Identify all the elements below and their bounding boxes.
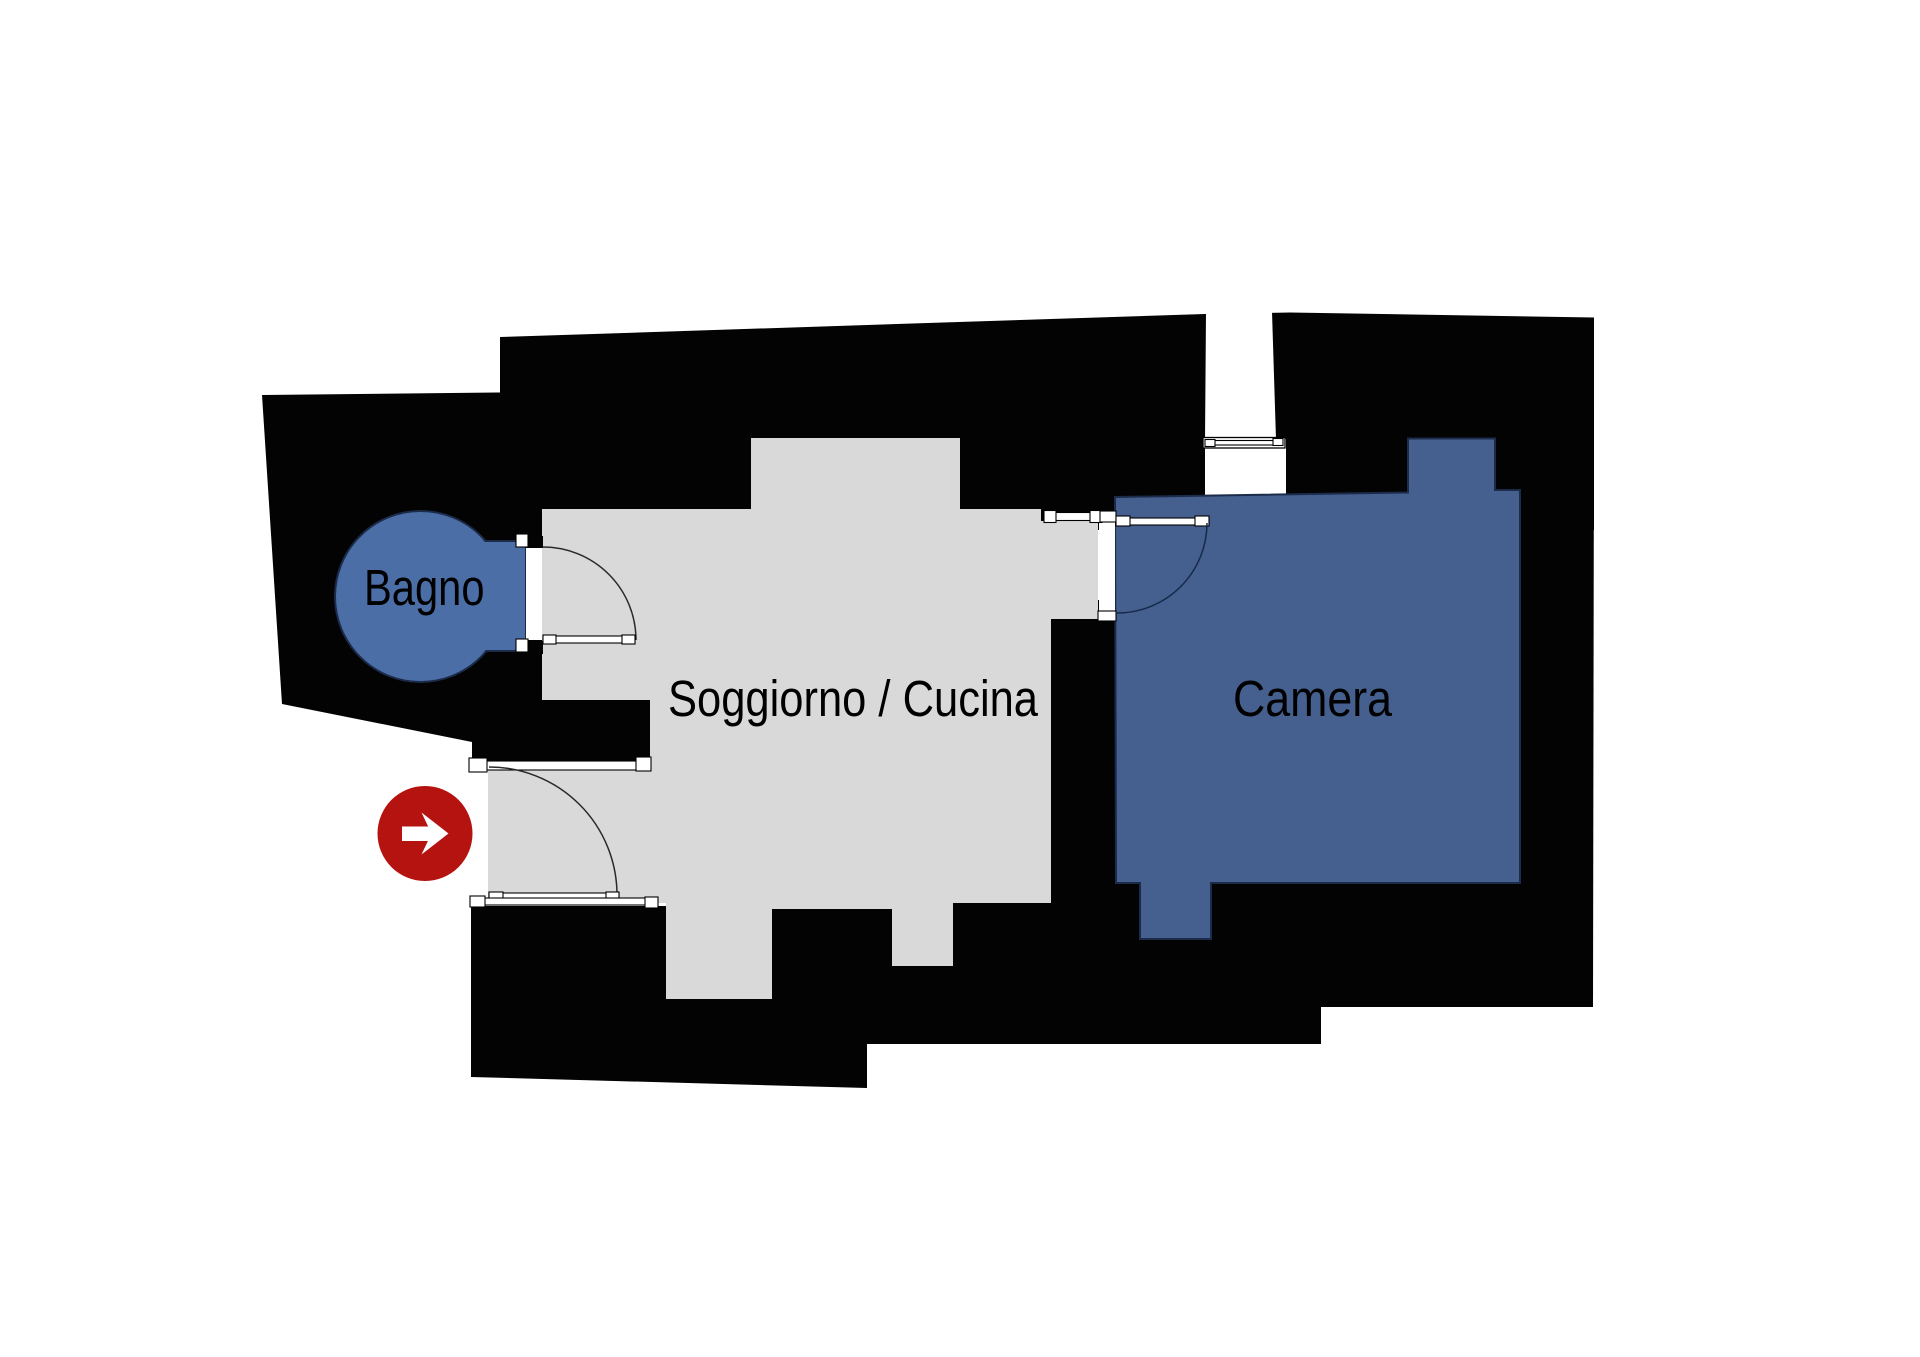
svg-text:Soggiorno / Cucina: Soggiorno / Cucina xyxy=(668,670,1039,727)
svg-text:Bagno: Bagno xyxy=(364,559,485,616)
svg-text:Camera: Camera xyxy=(1233,670,1393,727)
